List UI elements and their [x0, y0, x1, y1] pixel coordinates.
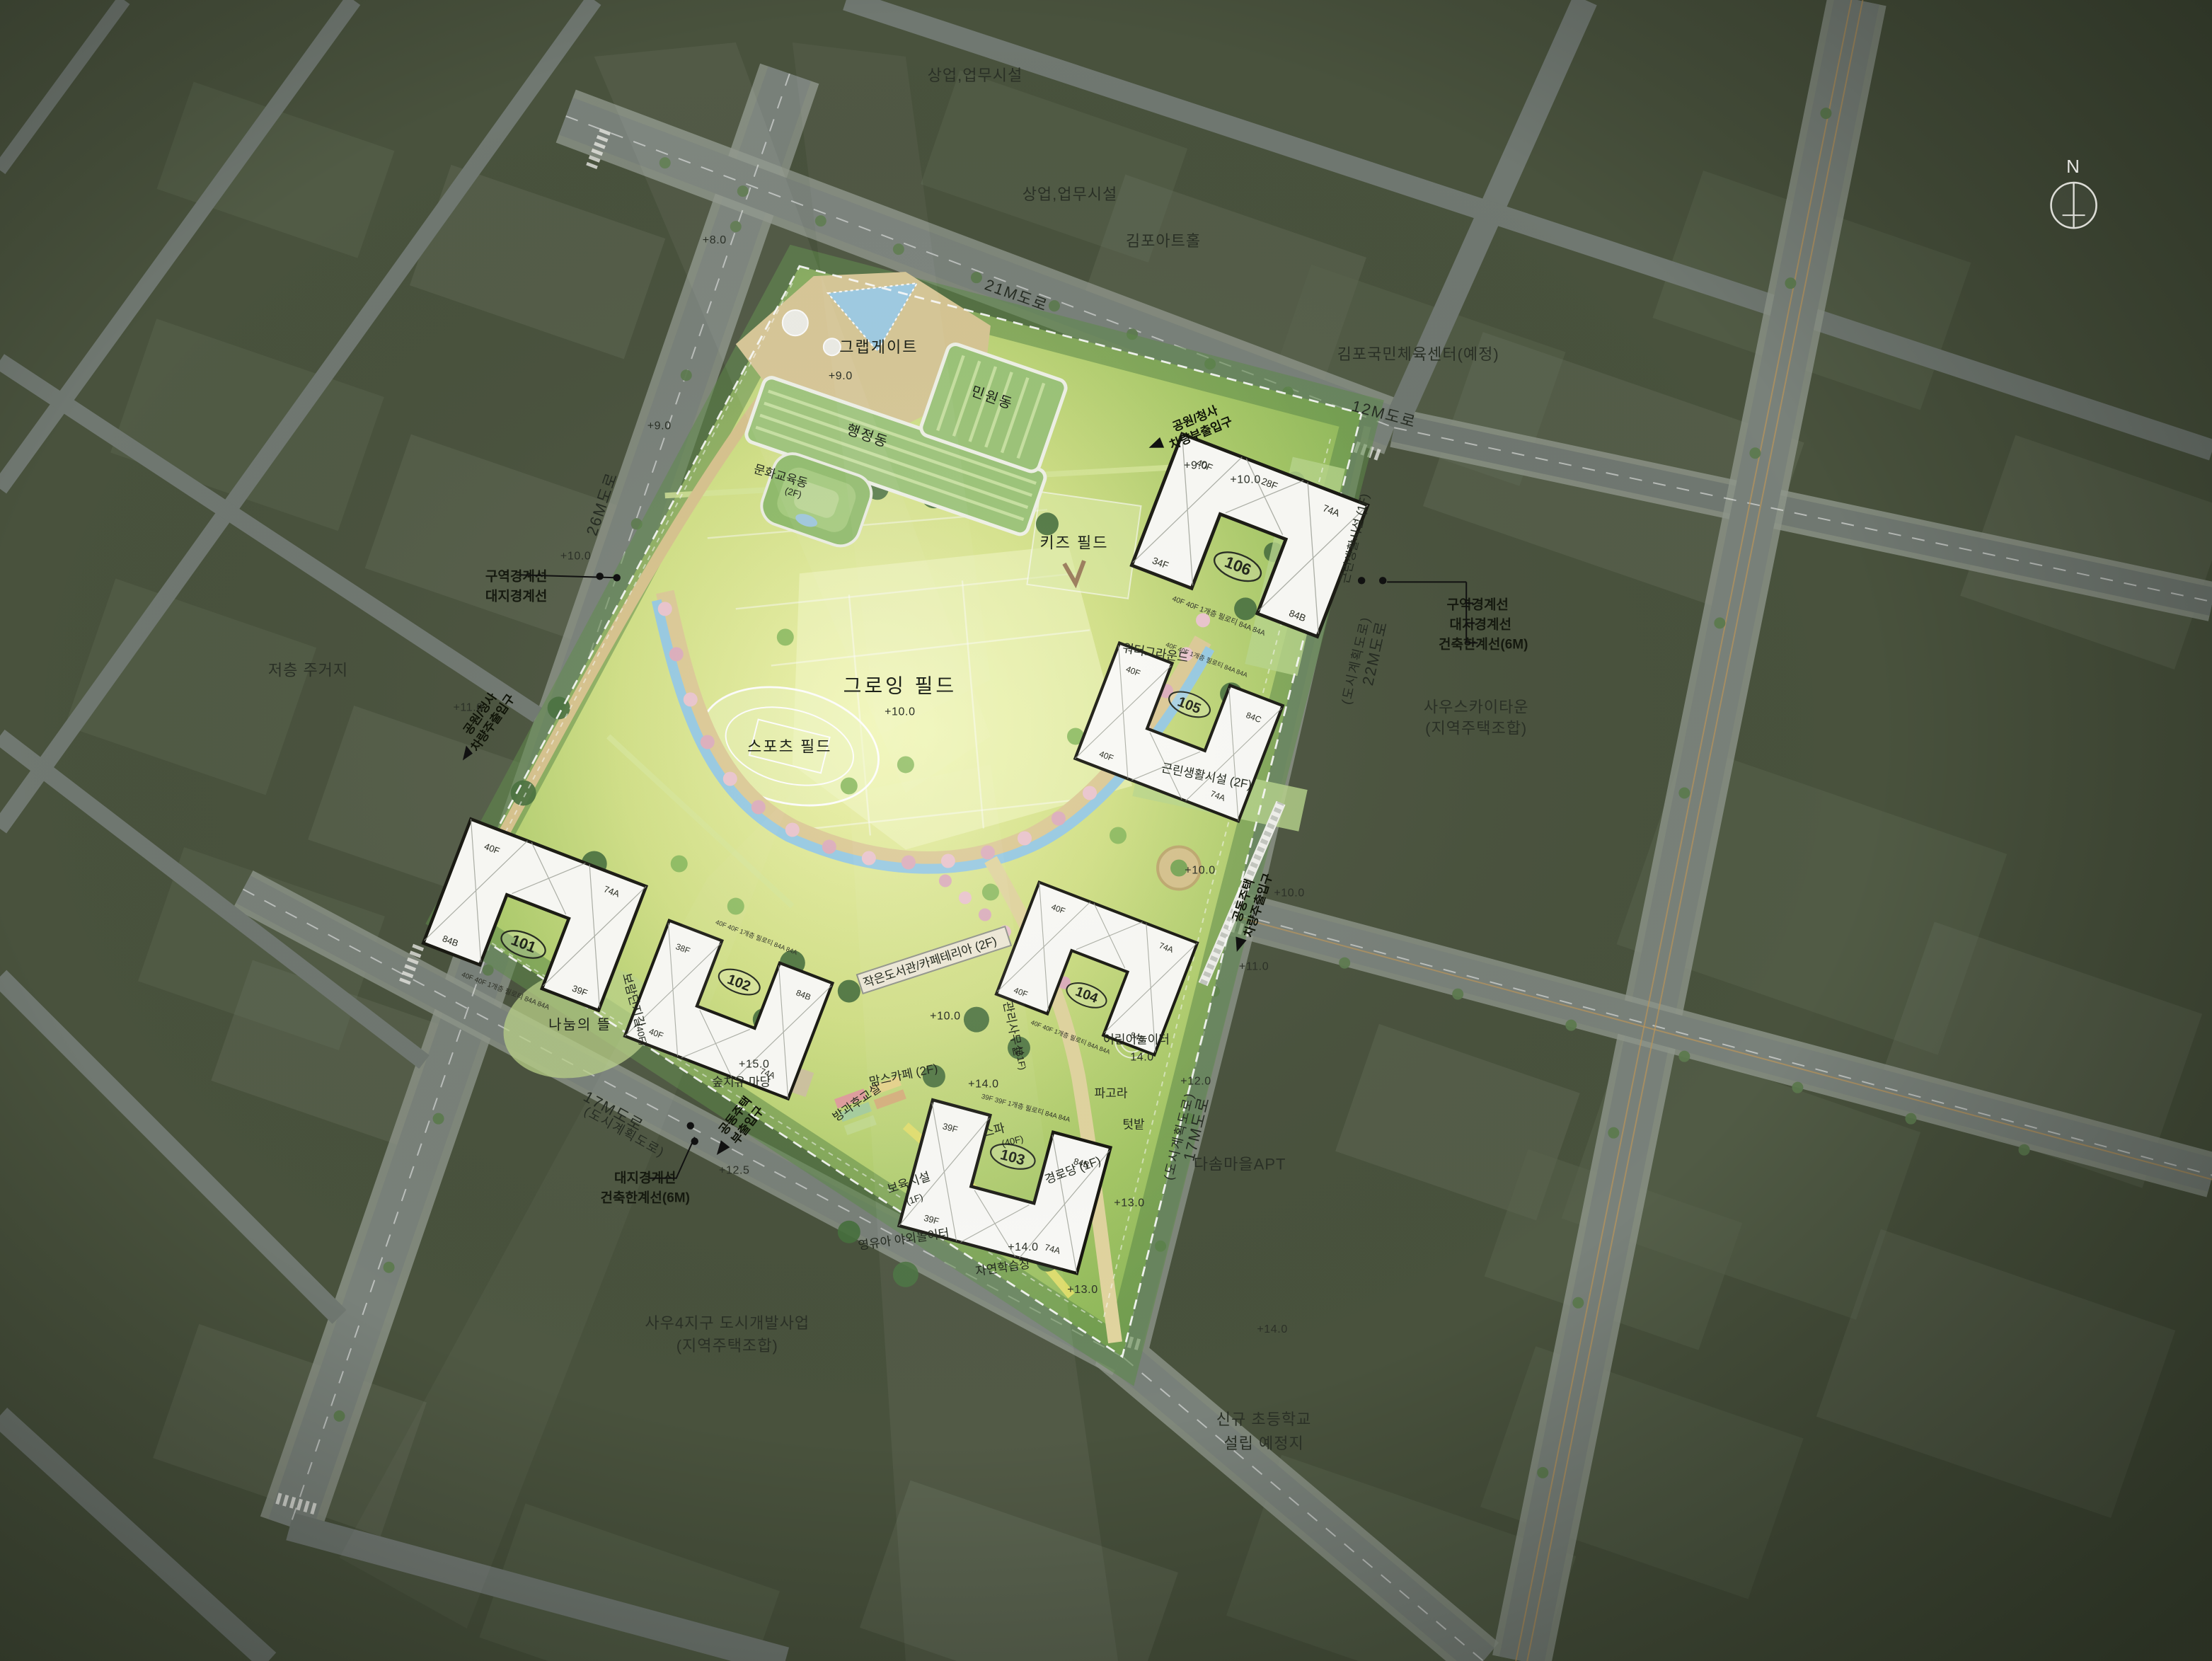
label-growing-field: 그로잉 필드	[843, 674, 957, 696]
elevation-mark: +9.0	[647, 420, 672, 432]
elevation-mark: +10.0	[560, 550, 592, 562]
elevation-mark: +10.0	[1274, 887, 1305, 900]
area-label-commercial-1: 상업,업무시설	[928, 67, 1023, 84]
area-label-south-sky-town-sub: (지역주택조합)	[1425, 719, 1527, 737]
elevation-mark: +8.0	[703, 234, 727, 246]
compass-north-label: N	[2066, 156, 2081, 177]
elevation-mark: +10.0	[930, 1011, 961, 1023]
elevation-mark: +14.0	[1257, 1323, 1288, 1335]
elevation-mark: +15.0	[739, 1059, 769, 1071]
elevation-mark: +14.0	[968, 1079, 999, 1091]
area-label-dasom-apt: 다솜마을APT	[1194, 1156, 1286, 1173]
callout-zone-boundary: 구역경계선	[485, 568, 547, 584]
area-label-new-school-1: 신규 초등학교	[1216, 1410, 1312, 1428]
elevation-mark: +11.0	[1239, 961, 1269, 973]
area-label-sawoo-1: 사우4지구 도시개발사업	[645, 1314, 810, 1332]
callout-site-boundary: 대지경계선	[1450, 616, 1511, 632]
label-garden: 텃밭	[1122, 1118, 1145, 1132]
area-label-sawoo-2: (지역주택조합)	[676, 1337, 778, 1355]
label-sharing-yard: 나눔의 뜰	[548, 1017, 611, 1033]
area-label-commercial-2: 상업,업무시설	[1023, 185, 1118, 203]
area-label-new-school-2: 설립 예정지	[1223, 1435, 1303, 1452]
elevation-mark: +12.5	[719, 1165, 750, 1177]
elevation-mark: +10.0	[1185, 865, 1215, 877]
elevation-mark: +9.0	[1184, 459, 1208, 471]
site-plan: 101 40F 74A 84B 39F 40F 40F 1개층 필로티 84A …	[0, 0, 2212, 1661]
elevation-mark: +12.0	[1180, 1076, 1211, 1088]
callout-zone-boundary: 구역경계선	[1447, 597, 1509, 612]
area-label-sports-center: 김포국민체육센터(예정)	[1337, 345, 1499, 363]
label-children-playground: 어린이놀이터	[1103, 1033, 1170, 1047]
elevation-mark: +9.0	[829, 370, 853, 382]
elevation-mark: +10.0	[1230, 473, 1261, 485]
area-label-south-sky-town: 사우스카이타운	[1424, 698, 1529, 715]
elevation-mark: +13.0	[1114, 1197, 1145, 1209]
vignette	[0, 0, 2212, 1661]
elevation-mark: +13.0	[1067, 1284, 1098, 1296]
area-label-lowrise: 저층 주거지	[268, 661, 348, 679]
area-label-art-hall: 김포아트홀	[1126, 232, 1201, 250]
label-sports-field: 스포츠 필드	[747, 737, 831, 755]
callout-site-boundary: 대지경계선	[485, 588, 547, 604]
label-pergola: 파고라	[1095, 1087, 1128, 1100]
label-children-playground-level: 14.0	[1130, 1052, 1154, 1064]
callout-build-limit: 건축한계선(6M)	[600, 1190, 689, 1206]
callout-build-limit: 건축한계선(6M)	[1439, 636, 1528, 652]
elevation-mark: +11.0	[453, 701, 483, 713]
label-growing-field-level: +10.0	[885, 706, 916, 718]
label-gate: 그랩게이트	[839, 338, 918, 356]
label-kids-field: 키즈 필드	[1039, 534, 1108, 551]
elevation-mark: +14.0	[1008, 1241, 1038, 1253]
label-healing-yard: 숲치유 마당	[712, 1076, 771, 1089]
